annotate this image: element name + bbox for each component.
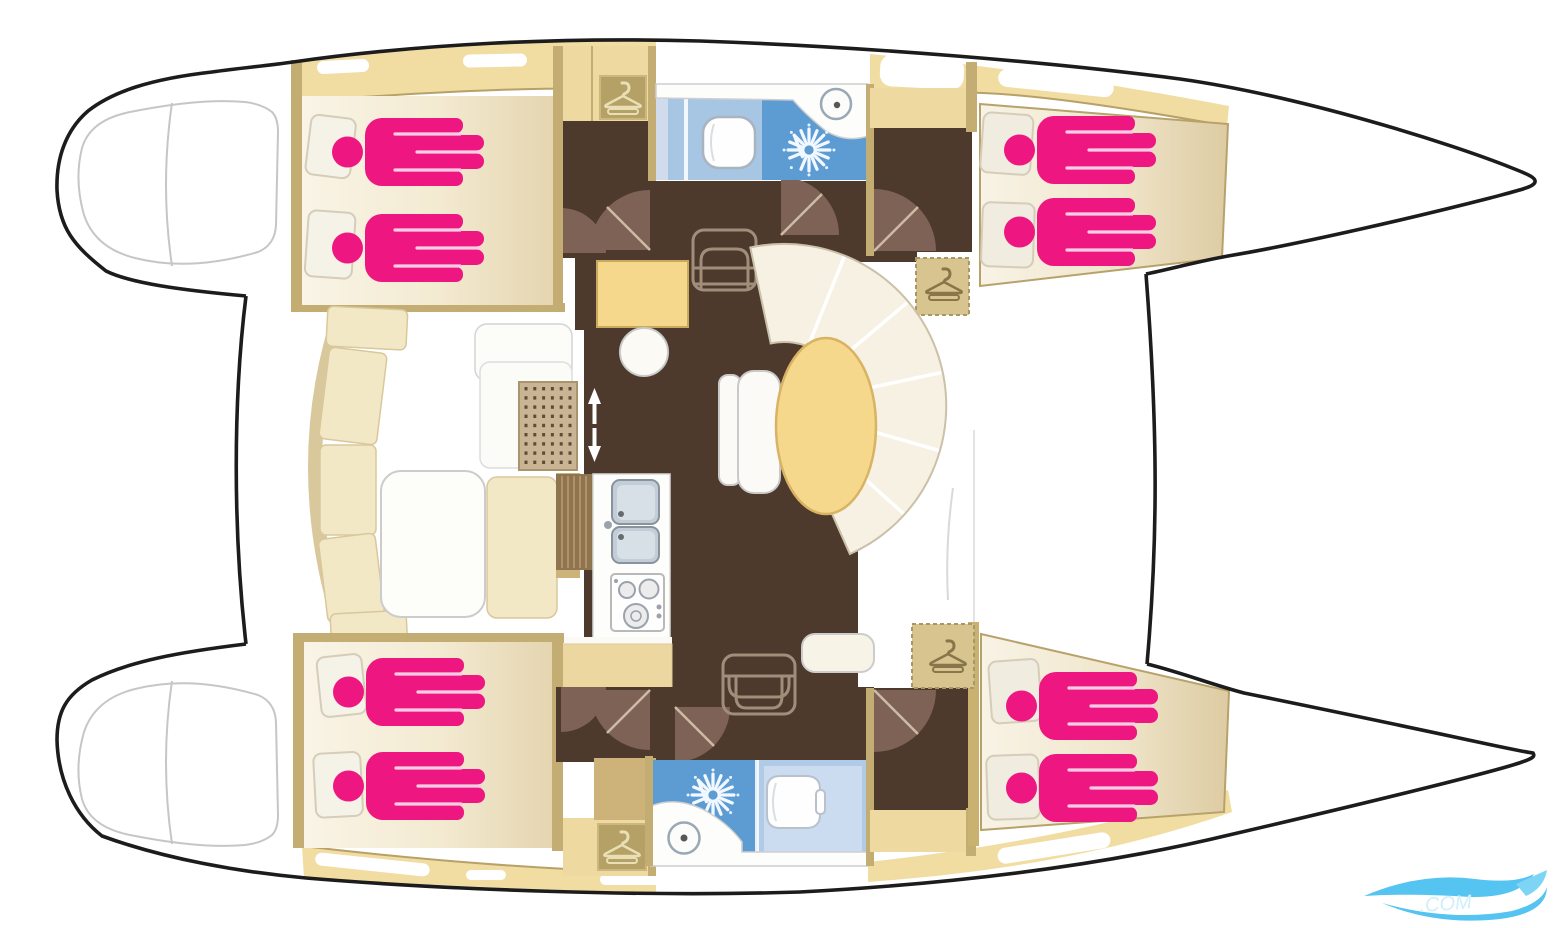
svg-text:.COM: .COM	[1419, 891, 1473, 917]
